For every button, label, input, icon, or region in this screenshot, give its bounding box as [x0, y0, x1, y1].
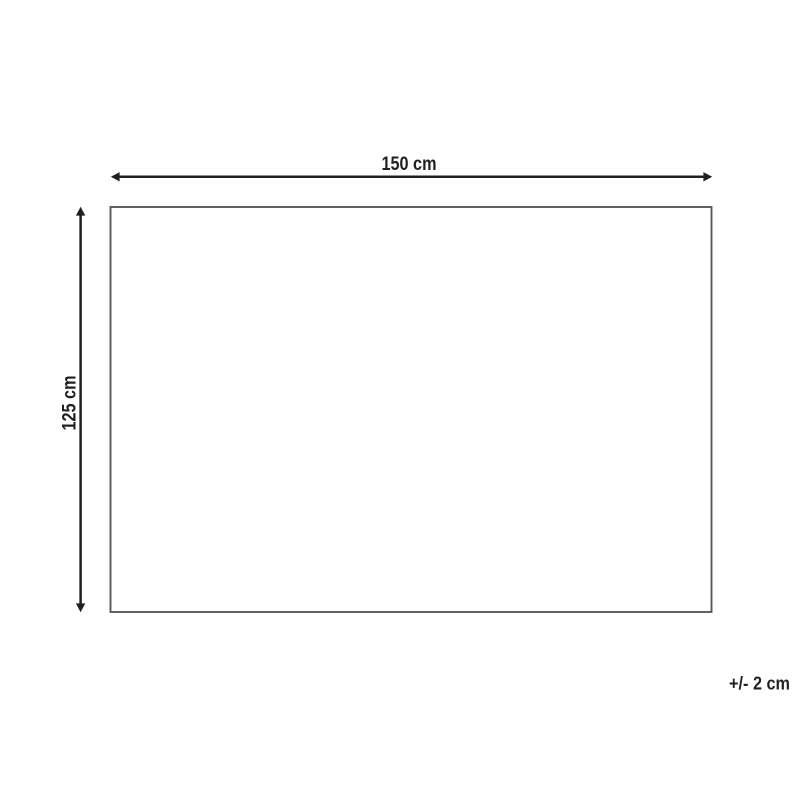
svg-text:+/- 2 cm: +/- 2 cm [729, 674, 790, 694]
svg-text:125 cm: 125 cm [60, 376, 81, 431]
svg-text:150 cm: 150 cm [382, 154, 437, 175]
